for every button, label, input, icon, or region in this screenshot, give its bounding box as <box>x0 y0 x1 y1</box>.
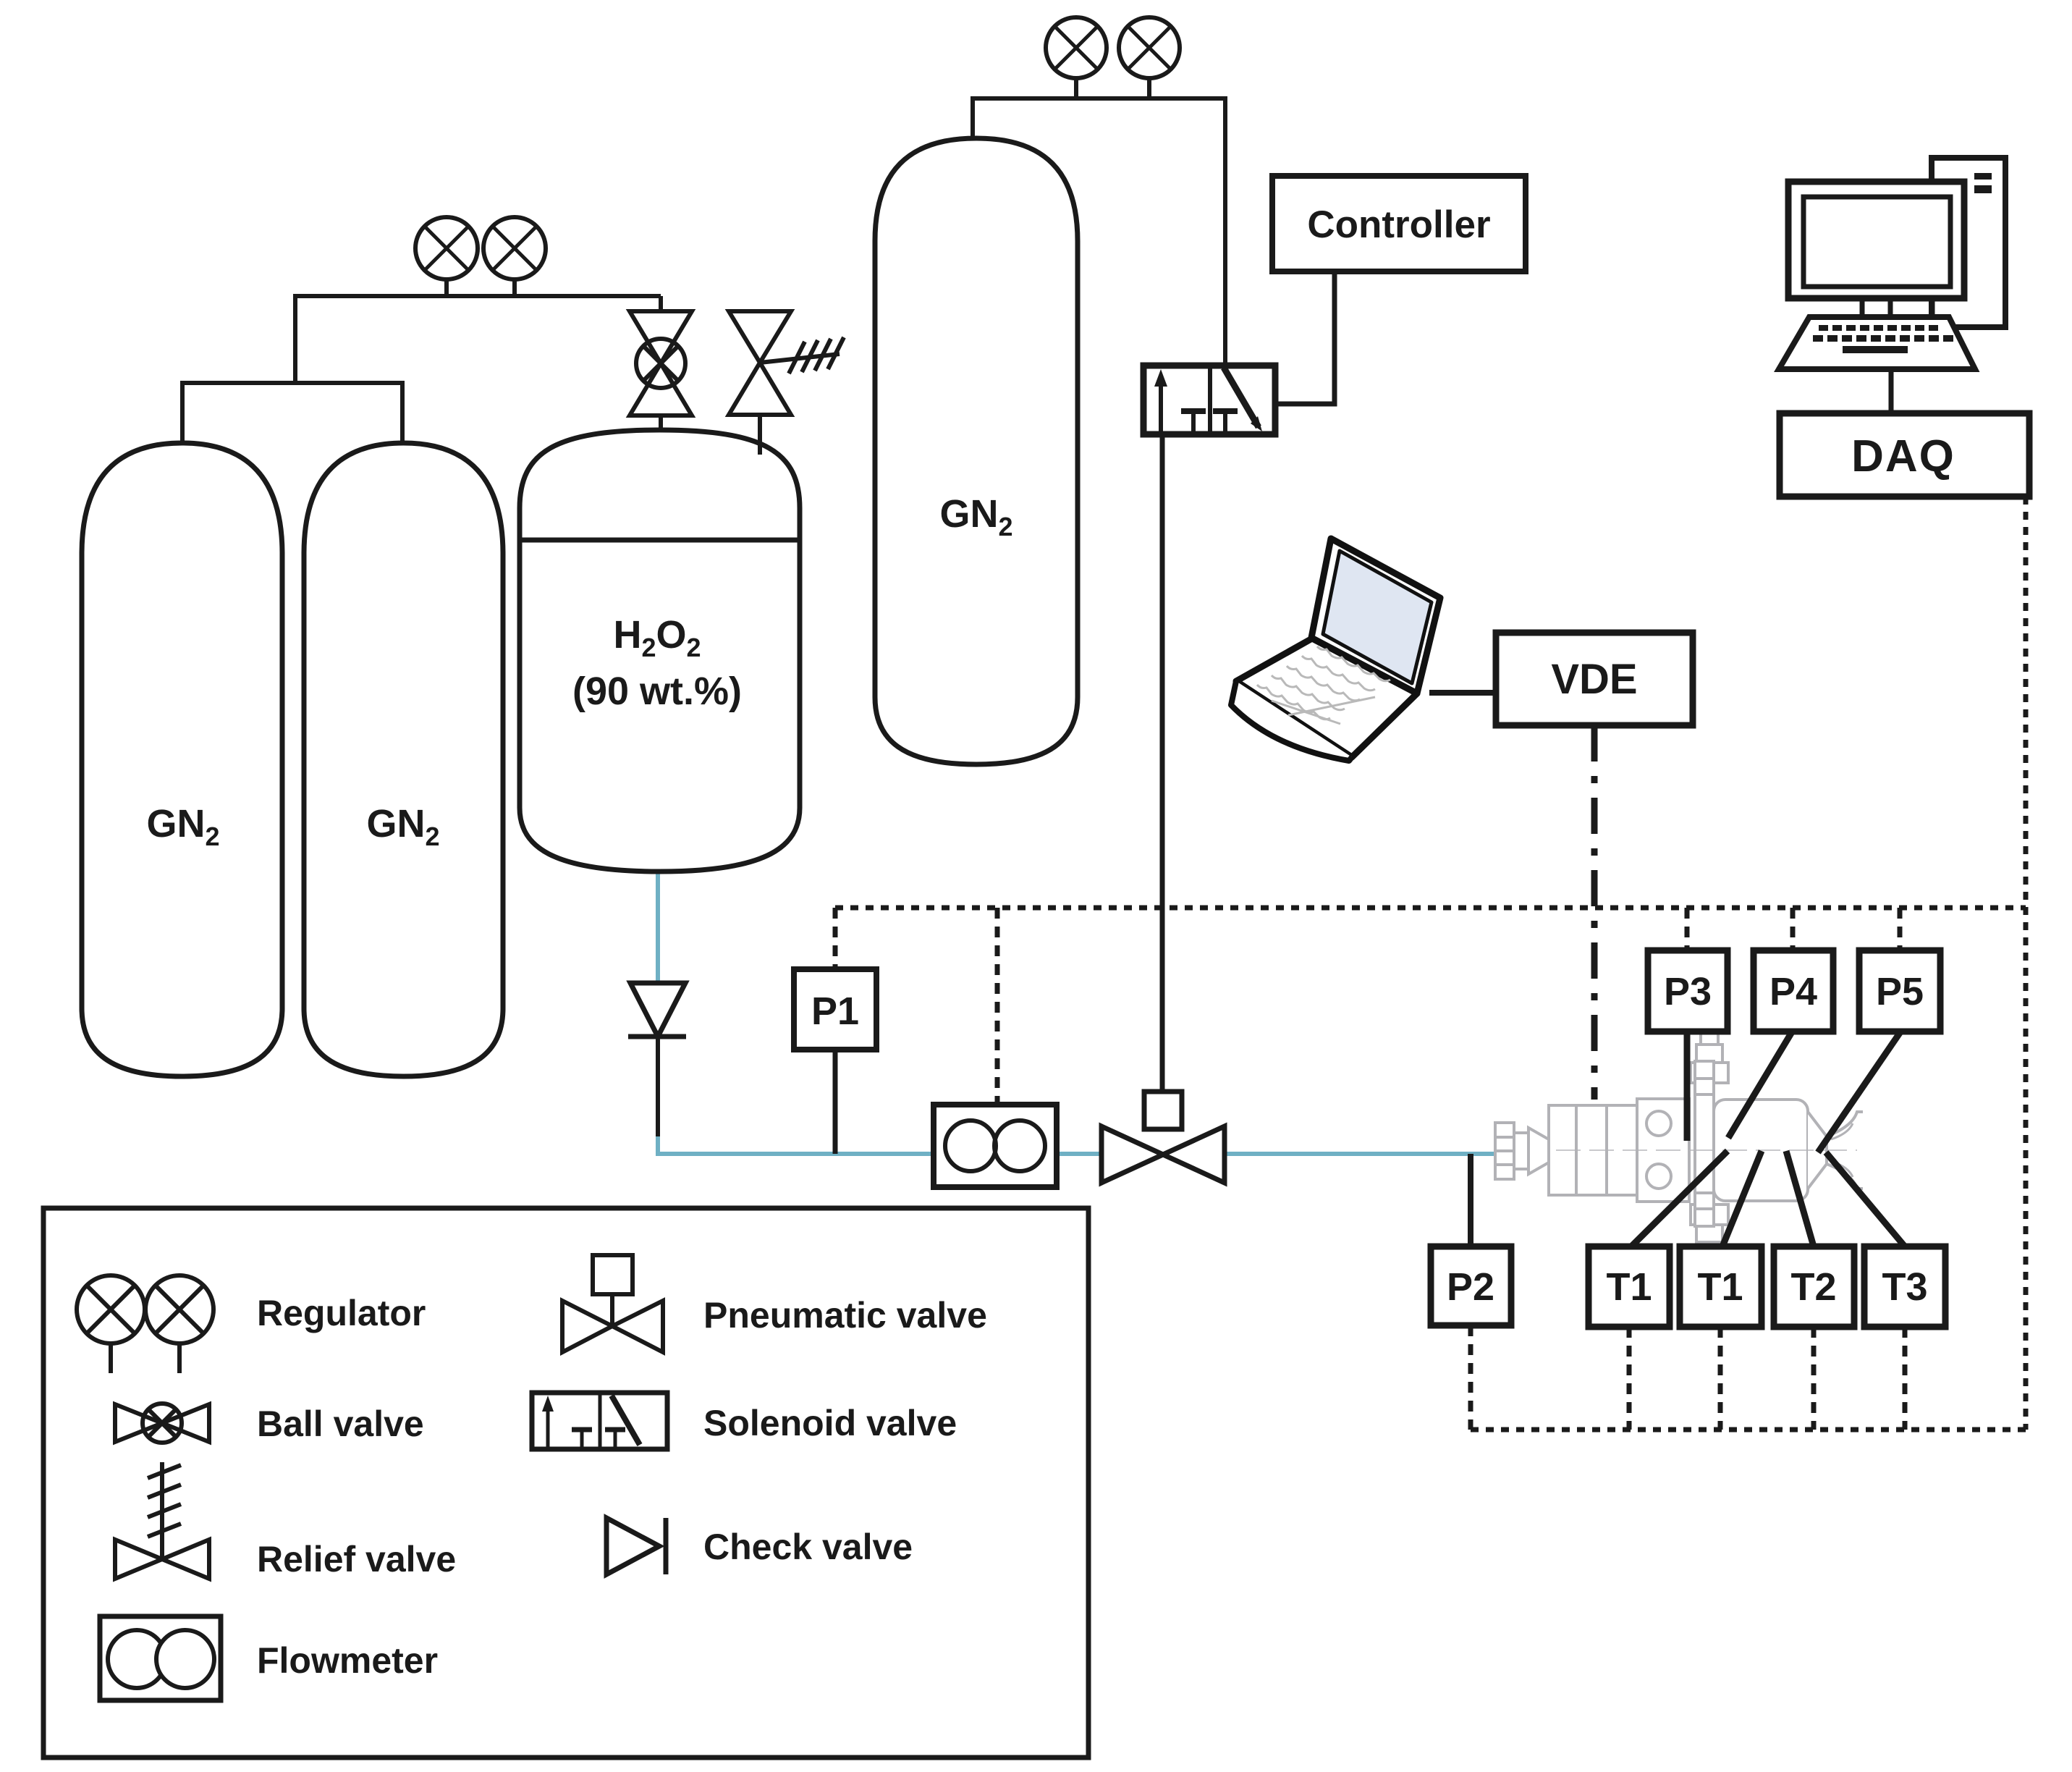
svg-text:Check valve: Check valve <box>703 1527 913 1567</box>
svg-text:T2: T2 <box>1790 1265 1836 1309</box>
svg-text:Controller: Controller <box>1307 203 1490 246</box>
svg-text:Ball valve: Ball valve <box>257 1404 424 1444</box>
svg-text:P5: P5 <box>1876 970 1924 1013</box>
svg-text:(90 wt.%): (90 wt.%) <box>572 670 742 713</box>
svg-text:P1: P1 <box>811 990 859 1033</box>
svg-text:T1: T1 <box>1697 1265 1743 1309</box>
svg-text:Regulator: Regulator <box>257 1293 426 1333</box>
svg-text:Relief valve: Relief valve <box>257 1539 456 1579</box>
svg-text:DAQ: DAQ <box>1851 431 1955 481</box>
svg-text:T3: T3 <box>1882 1265 1927 1309</box>
svg-text:Pneumatic valve: Pneumatic valve <box>703 1295 987 1336</box>
svg-text:P4: P4 <box>1769 970 1817 1013</box>
svg-text:P2: P2 <box>1447 1265 1494 1309</box>
svg-text:Flowmeter: Flowmeter <box>257 1640 438 1681</box>
svg-text:VDE: VDE <box>1551 656 1637 703</box>
svg-text:Solenoid valve: Solenoid valve <box>703 1403 957 1443</box>
svg-text:P3: P3 <box>1664 970 1712 1013</box>
svg-text:T1: T1 <box>1606 1265 1652 1309</box>
